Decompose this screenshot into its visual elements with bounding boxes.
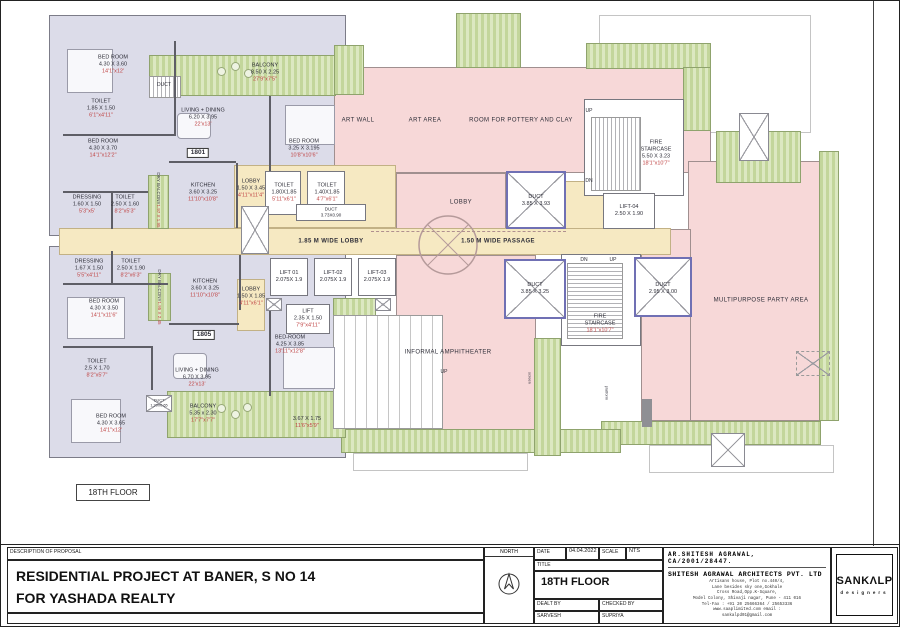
room-label-duct: DUCT3.85 X 3.93 — [522, 194, 550, 208]
planter — [586, 43, 711, 69]
description-header-cell: DESCRIPTION OF PROPOSAL — [7, 547, 484, 560]
room-label-toilet: TOILET2.50 X 1.908'2"x6'3" — [117, 259, 145, 280]
room-label-art-wall: ART WALL — [342, 117, 375, 125]
flat-number-1805: 1805 — [193, 330, 215, 340]
corridor-lobby — [59, 228, 671, 255]
amphitheater-steps — [333, 315, 443, 429]
logo-tagline: designers — [840, 590, 888, 595]
room-label-pottery: ROOM FOR POTTERY AND CLAY — [469, 117, 573, 125]
planter-pot-icon — [217, 67, 226, 76]
room-label-dressing: DRESSING1.60 X 1.505'3"x5' — [73, 195, 102, 216]
planter — [534, 338, 561, 456]
room-label-duct: DUCT3.85 X 3.25 — [521, 282, 549, 296]
empty-strip-cell — [7, 613, 484, 624]
planter — [456, 13, 521, 68]
corridor-label: 1.85 M WIDE LOBBY — [298, 238, 363, 246]
plan-floor-name-box: 18TH FLOOR — [76, 484, 150, 501]
expansion-joint-line — [371, 231, 566, 232]
planter-pot-icon — [243, 403, 252, 412]
wall — [169, 161, 236, 163]
planter-south-west — [341, 429, 621, 453]
room-label-lift02: LIFT-022.075X 1.9 — [320, 270, 347, 284]
room-label-duct: DUCT — [157, 82, 171, 88]
wall — [269, 311, 271, 396]
room-label-toilet: TOILET1.85 X 1.506'1"x4'11" — [87, 99, 115, 120]
flat-number-1801: 1801 — [187, 148, 209, 158]
dashed-duct-box — [796, 351, 830, 376]
room-label-kitchen: KITCHEN3.60 X 3.2511'10"x10'8" — [190, 279, 220, 300]
logo-wordmark: SANKΛLP — [836, 575, 892, 587]
up-label: UP — [441, 369, 448, 375]
scale-label-cell: SCALE — [599, 547, 626, 560]
wall — [269, 96, 271, 171]
planter-pot-icon — [217, 404, 226, 413]
small-duct — [266, 298, 282, 311]
party-area-zone — [688, 161, 821, 421]
room-label-balcony: BALCONY8.50 X 2.2527'9"x7'5" — [251, 63, 279, 84]
room-label-bedroom: BED-ROOM4.25 X 3.8513'11"x12'8" — [275, 335, 305, 356]
duct-box — [711, 433, 745, 467]
description-cell: RESIDENTIAL PROJECT AT BANER, S NO 14 FO… — [7, 560, 484, 613]
room-label-lobby: LOBBY1.50 X 1.854'11"x6'1" — [237, 287, 265, 308]
scale-value-cell: NTS — [626, 547, 663, 560]
wall — [174, 41, 176, 134]
date-label-cell: DATE — [534, 547, 566, 560]
planter-pot-icon — [231, 410, 240, 419]
sankalp-logo: SANKΛLP designers — [836, 554, 893, 616]
screen-label: screen — [527, 372, 532, 384]
duct-box — [739, 113, 769, 161]
room-label-dressing: DRESSING1.67 X 1.505'5"x4'11" — [75, 259, 104, 280]
dealt-value-cell: SARVESH — [534, 611, 599, 624]
up-label: UP — [610, 257, 617, 263]
planter-east — [819, 151, 839, 421]
room-label-lobby: LOBBY — [450, 199, 472, 207]
room-label-lift03: LIFT-032.075X 1.9 — [364, 270, 391, 284]
planter-pot-icon — [231, 62, 240, 71]
architect-address: Artisans house, Plot no.440/4, Lane besi… — [668, 580, 826, 620]
room-label-duct: DUCT3.73X0.90 — [321, 206, 342, 217]
dealt-label-cell: DEALT BY — [534, 599, 599, 611]
up-label: UP — [586, 108, 593, 114]
architect-cell: AR.SHITESH AGRAWAL, CA/2001/28447. SHITE… — [663, 547, 831, 624]
wall — [63, 283, 168, 285]
room-label-amphitheater: INFORMAL AMPHITHEATER — [404, 349, 491, 357]
passage-label: 1.50 M WIDE PASSAGE — [461, 238, 535, 246]
north-cell: NORTH — [484, 547, 534, 624]
room-label-balcony-dims: 3.67 X 1.7511'6"x5'9" — [293, 416, 321, 430]
architect-name-line1: AR.SHITESH AGRAWAL, — [668, 551, 826, 558]
room-label-dry-balcony: DRY BALCONY1.95 X 2.45 — [156, 269, 162, 324]
room-label-lift01: LIFT 012.075X 1.9 — [276, 270, 303, 284]
checked-label-cell: CHECKED BY — [599, 599, 663, 611]
room-label-toilet: TOILET2.50 X 1.608'2"x5'3" — [111, 195, 139, 216]
room-label-living: LIVING + DINING6.20 X 3.9522'x13' — [181, 108, 225, 129]
dn-label: DN — [580, 257, 587, 263]
logo-cell: SANKΛLP designers — [831, 547, 898, 624]
room-label-bedroom: BED ROOM4.30 X 3.6514'1"x12' — [96, 414, 126, 435]
titleblock-top-line — [1, 544, 900, 545]
title-label-cell: TITLE — [534, 560, 663, 571]
wall — [63, 191, 148, 193]
wall — [151, 346, 153, 390]
planter — [334, 45, 364, 95]
room-label-bedroom: BED ROOM4.30 X 3.6014'1"x12' — [98, 55, 128, 76]
wall — [63, 346, 151, 348]
terrace-outline — [353, 453, 528, 471]
dn-label: DN — [585, 178, 592, 184]
platform-block — [642, 399, 652, 427]
room-label-fire-staircase: FIRE STAIRCASE5.50 X 3.2318'1"x10'7" — [635, 139, 677, 167]
architect-firm: SHITESH AGRAWAL ARCHITECTS PVT. LTD — [668, 571, 826, 578]
room-label-dry-balcony: DRY BALCONY1.97 X 1.95 — [155, 172, 161, 227]
room-label-bedroom: BED ROOM4.30 X 3.7014'1"x12'2" — [88, 139, 118, 160]
room-label-lift-04: LIFT-042.50 X 1.90 — [615, 204, 643, 218]
architect-name-line2: CA/2001/28447. — [668, 558, 826, 568]
room-label-toilet: TOILET1.80X1.855'11"x6'1" — [271, 183, 296, 204]
room-label-kitchen: KITCHEN3.60 X 3.2511'10"x10'8" — [188, 183, 218, 204]
room-label-bedroom: BED ROOM3.25 X 3.19510'8"x10'6" — [288, 139, 319, 160]
checked-value-cell: SUPRIYA — [599, 611, 663, 624]
north-compass-icon — [496, 571, 522, 597]
north-label: NORTH — [485, 548, 533, 557]
room-label-duct: DUCT1.20X0.65 — [150, 398, 167, 407]
title-value-cell: 18TH FLOOR — [534, 571, 663, 599]
room-label-fire-staircase: FIRE STAIRCASE18'1"x10'7" — [580, 314, 620, 335]
planter — [683, 67, 711, 131]
sheet-inner-border — [873, 1, 874, 546]
room-label-living: LIVING + DINING6.70 X 3.9522'x13' — [175, 368, 219, 389]
date-value-cell: 04.04.2022 — [566, 547, 599, 560]
room-label-toilet: TOILET1.40X1.854'7"x6'1" — [314, 183, 339, 204]
drawing-sheet: BED ROOM4.30 X 3.6014'1"x12' TOILET1.85 … — [0, 0, 900, 627]
room-label-toilet: TOILET2.5 X 1.708'2"x5'7" — [84, 359, 109, 380]
wall — [63, 134, 176, 136]
room-label-duct: DUCT2.95 X 3.00 — [649, 282, 677, 296]
project-title-line2: FOR YASHADA REALTY — [16, 587, 475, 609]
platform-label: platform — [604, 386, 609, 400]
room-label-bedroom: BED ROOM4.30 X 3.5014'1"x11'6" — [89, 299, 119, 320]
room-label-party-area: MULTIPURPOSE PARTY AREA — [714, 297, 809, 305]
room-label-art-area: ART AREA — [409, 117, 442, 125]
project-title-line1: RESIDENTIAL PROJECT AT BANER, S NO 14 — [16, 565, 475, 587]
room-label-balcony: BALCONY5.35 x 2.3017'7"x7'7" — [189, 404, 216, 425]
wall — [111, 251, 113, 283]
stair-treads — [591, 117, 641, 191]
room-label-lift: LIFT2.35 X 1.507'9"x4'11" — [294, 309, 322, 330]
description-header-text: DESCRIPTION OF PROPOSAL — [8, 548, 483, 556]
room-label-lobby: LOBBY1.50 X 3.454'11"x11'4" — [237, 179, 265, 200]
small-duct — [375, 298, 391, 311]
duct-box — [241, 206, 269, 254]
wall — [169, 323, 239, 325]
